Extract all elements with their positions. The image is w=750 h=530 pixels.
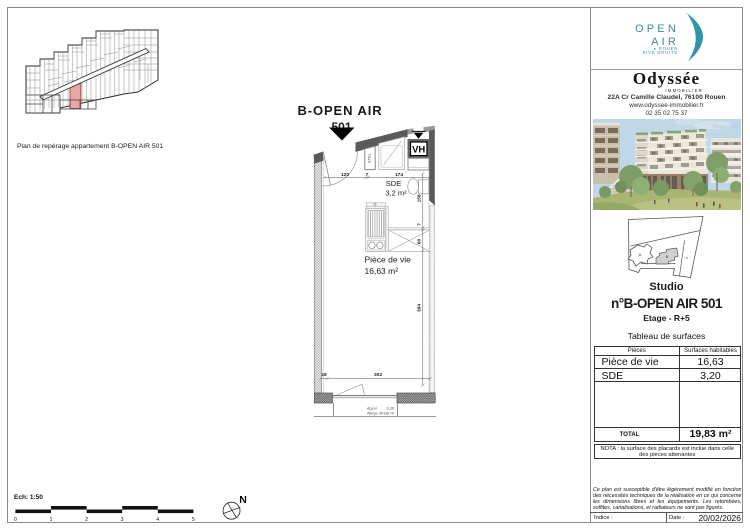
svg-text:7: 7 <box>416 223 422 226</box>
svg-text:0,36: 0,36 <box>387 407 394 411</box>
svg-text:302: 302 <box>374 372 382 378</box>
svg-text:0: 0 <box>14 517 17 523</box>
svg-text:18: 18 <box>321 372 327 378</box>
svg-text:60: 60 <box>416 239 422 245</box>
svg-text:Plan de repérage appartement B: Plan de repérage appartement B-OPEN AIR … <box>17 143 163 150</box>
svg-text:Pièce de vie: Pièce de vie <box>365 255 412 265</box>
svg-text:Appui: Appui <box>367 407 377 411</box>
svg-text:5: 5 <box>192 517 195 523</box>
svg-text:4: 4 <box>156 517 159 523</box>
svg-text:0,70: 0,70 <box>387 412 394 416</box>
svg-text:Allège vitrée: Allège vitrée <box>367 412 388 416</box>
svg-text:3: 3 <box>121 517 124 523</box>
svg-text:1: 1 <box>50 517 53 523</box>
svg-text:VH: VH <box>412 144 425 155</box>
svg-text:A: A <box>639 252 642 257</box>
svg-text:174: 174 <box>395 172 403 178</box>
svg-text:120: 120 <box>341 172 349 178</box>
svg-text:158: 158 <box>416 194 422 202</box>
svg-text:2: 2 <box>85 517 88 523</box>
svg-text:c: c <box>686 255 688 260</box>
svg-text:7: 7 <box>366 172 369 178</box>
svg-text:16,63 m²: 16,63 m² <box>365 266 399 276</box>
svg-text:ETEL: ETEL <box>367 152 372 163</box>
svg-text:3,2 m²: 3,2 m² <box>385 189 407 198</box>
svg-text:B-OPEN AIR: B-OPEN AIR <box>297 103 382 118</box>
svg-text:SDE: SDE <box>386 179 401 188</box>
svg-text:394: 394 <box>416 304 422 312</box>
svg-text:Ech: 1:50: Ech: 1:50 <box>14 494 43 501</box>
svg-text:N: N <box>239 494 247 506</box>
